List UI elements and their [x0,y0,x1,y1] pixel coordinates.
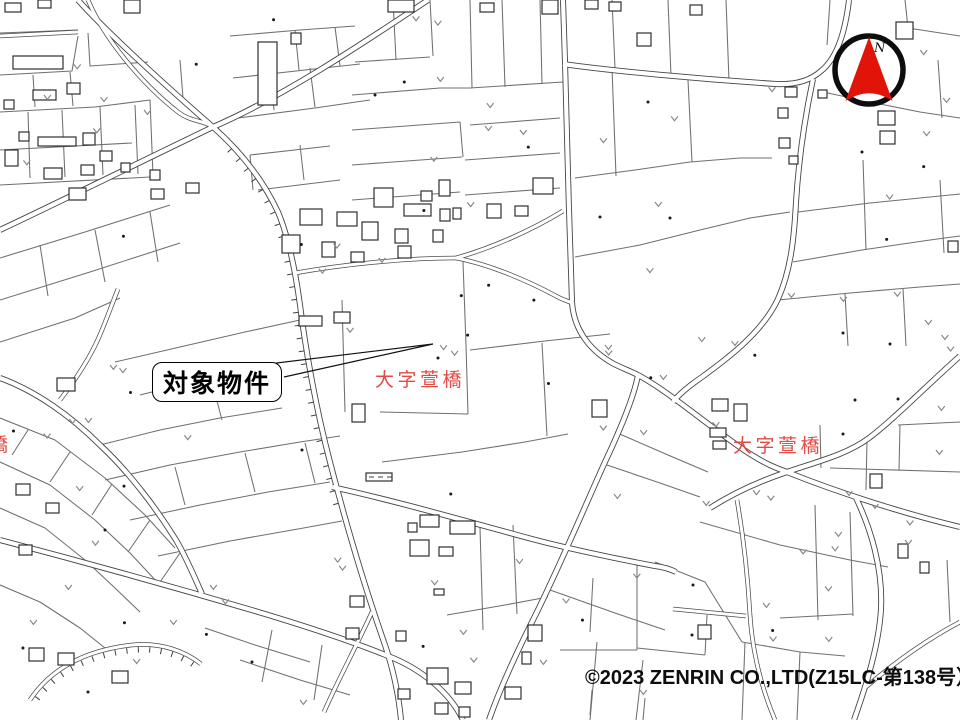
point-symbol-dot [251,661,254,664]
building-footprint [388,0,414,12]
field-chevron-mark [920,50,927,54]
field-chevron-mark [485,126,492,130]
field-chevron-mark [65,585,72,589]
point-symbol-dot [195,63,198,66]
building-footprint [150,170,160,180]
field-chevron-mark [101,97,108,101]
place-label-center: 大字萱橋 [375,369,465,391]
field-chevron-mark [936,450,943,454]
building-footprint [459,707,470,717]
point-symbol-dot [129,391,132,394]
building-footprint [29,648,44,661]
field-chevron-mark [769,87,776,91]
building-footprint [352,404,365,422]
field-chevron-mark [93,128,100,132]
point-symbol-dot [581,619,584,622]
building-footprint [789,156,798,164]
building-footprint [515,206,528,216]
building-footprint [920,562,929,573]
slope-tick [265,200,270,203]
building-footprint [112,671,128,683]
point-symbol-dot [647,101,650,104]
building-footprint [350,596,364,607]
building-footprint [690,5,702,15]
point-symbol-dot [691,634,694,637]
building-footprint [487,204,501,218]
building-footprint [542,0,558,14]
point-symbol-dot [897,398,900,401]
field-chevron-mark [753,490,760,494]
building-footprint [69,188,86,200]
building-footprint [58,653,74,665]
building-footprint [282,235,300,253]
building-footprint [57,378,75,391]
point-symbol-dot [599,216,602,219]
building-footprint [300,209,322,225]
building-footprint [16,484,30,495]
compass-north-indicator: N [835,36,903,104]
field-chevron-mark [110,365,117,369]
building-footprint [100,151,112,161]
point-symbol-dot [374,94,377,97]
building-footprint [322,242,335,257]
building-footprint [505,687,521,699]
building-footprint [46,503,59,513]
point-symbol-dot [527,146,530,149]
field-chevron-mark [600,138,607,142]
slope-tick [330,491,335,492]
building-footprint [346,628,359,639]
road-surfaces [0,0,960,720]
building-footprint [420,515,439,527]
slope-tick [297,338,303,339]
point-symbol-dot [669,217,672,220]
slope-tick [285,261,290,262]
point-symbol-dot [272,18,275,21]
field-chevron-mark [563,599,570,603]
slope-tick [308,402,313,403]
building-footprint [592,400,607,417]
field-chevron-mark [614,494,621,498]
slope-tick [244,168,248,171]
point-symbol-dot [532,299,535,302]
field-chevron-mark [763,603,770,607]
building-footprint [880,131,895,144]
field-chevron-mark [451,351,458,355]
field-chevron-mark [600,426,607,430]
building-footprint [710,428,726,437]
field-chevron-mark [120,368,127,372]
field-chevron-mark [470,658,477,662]
slope-tick [171,652,173,657]
slope-tick [35,697,39,700]
field-chevron-mark [788,293,795,297]
field-chevron-mark [825,637,832,641]
field-chevron-mark [184,435,191,439]
building-footprint [151,189,164,199]
slope-tick [317,440,322,441]
place-label-east: 大字萱橋 [733,435,823,457]
road-network [0,0,960,720]
slope-tick [306,389,311,390]
slope-tick [291,299,297,300]
building-footprint [396,631,406,641]
slope-tick [181,656,183,661]
building-footprint [453,208,461,219]
parcel-lines-center [342,262,708,630]
point-symbol-dot [122,235,125,238]
field-chevron-mark [467,202,474,206]
building-footprint [439,547,453,556]
building-footprint [38,137,76,146]
slope-tick [299,351,305,352]
field-chevron-mark [947,347,954,351]
building-footprint [712,399,728,411]
building-footprint [698,625,711,639]
field-chevron-mark [768,496,775,500]
building-footprint [427,668,448,684]
compass-n-label: N [873,41,886,56]
building-footprint [439,180,450,196]
slope-tick [43,688,47,692]
building-footprint [410,540,429,556]
field-chevron-mark [732,341,739,345]
building-footprint [121,163,130,172]
map-canvas: 大字萱橋 大字萱橋 橋 N [0,0,960,720]
point-symbol-dot [301,449,304,452]
field-chevron-mark [144,110,151,114]
field-chevron-mark [923,131,930,135]
building-footprint [337,212,357,226]
field-chevron-mark [133,659,140,663]
target-property-callout-label: 対象物件 [163,364,271,400]
field-chevron-mark [431,580,438,584]
field-chevron-mark [487,103,494,107]
point-symbol-dot [21,646,24,649]
building-footprint [38,0,51,8]
point-symbol-dot [403,80,406,83]
building-footprint [408,523,417,532]
field-chevron-mark [894,292,901,296]
field-chevron-mark [434,21,441,25]
slope-tick [287,274,293,275]
building-footprint [896,22,913,39]
building-footprint [878,111,895,125]
building-footprint [533,178,553,194]
slope-tick [51,679,55,683]
slope-tick [228,149,232,153]
field-chevron-mark [698,337,705,341]
field-chevron-mark [646,268,653,272]
slope-tick [127,648,128,654]
field-chevron-mark [460,630,467,634]
field-chevron-mark [85,418,92,422]
point-symbol-dot [300,243,303,246]
point-symbol-dot [771,629,774,632]
field-chevron-mark [671,116,678,120]
building-footprint [124,0,140,13]
slope-tick [71,666,74,671]
field-chevron-mark [437,77,444,81]
point-symbol-dot [889,343,892,346]
building-footprint [785,87,797,97]
building-footprint [299,316,322,326]
slope-tick [92,656,94,661]
field-chevron-mark [655,202,662,206]
field-chevron-mark [832,546,839,550]
building-footprint [81,165,94,175]
field-chevron-mark [76,486,83,490]
building-footprint [291,33,301,44]
target-property-callout: 対象物件 [152,362,282,402]
point-symbol-dot [466,334,469,337]
field-chevron-mark [210,585,217,589]
point-symbol-dot [885,238,888,241]
building-footprint [528,625,542,641]
slope-tick [303,377,309,378]
field-chevron-mark [942,335,949,339]
building-footprint [435,703,448,714]
field-chevron-mark [825,586,832,590]
field-chevron-mark [660,375,667,379]
field-chevron-mark [907,521,914,525]
building-footprint [398,689,410,699]
building-footprint [713,441,726,449]
field-chevron-mark [170,620,177,624]
field-chevron-mark [605,351,612,355]
point-symbol-dot [842,332,845,335]
building-footprint [637,33,651,46]
field-chevron-mark [440,345,447,349]
field-chevron-mark [30,620,37,624]
building-footprint [362,222,378,240]
building-footprint [898,544,908,558]
point-symbol-dot [437,357,440,360]
field-chevron-mark [520,130,527,134]
point-symbol-dot [922,165,925,168]
place-label-west-partial: 橋 [0,434,12,456]
point-symbol-dot [649,376,652,379]
slope-tick [333,503,338,504]
field-chevron-mark [413,16,420,20]
point-symbol-dot [205,633,208,636]
field-chevron-mark [92,541,99,545]
building-footprint [450,521,475,534]
field-chevron-mark [938,406,945,410]
slope-tick [320,453,325,454]
point-symbol-dot [104,529,107,532]
point-symbol-dot [487,284,490,287]
building-footprint [258,42,277,105]
building-footprint [421,191,432,201]
building-footprint [5,150,18,166]
building-footprint [818,90,827,98]
slope-tick [275,224,280,226]
slope-tick [326,478,331,479]
field-chevron-mark [334,558,341,562]
slope-tick [103,653,104,658]
building-footprint [455,682,471,694]
slope-tick [301,364,307,365]
building-footprint [433,230,443,242]
copyright-notice: ©2023 ZENRIN CO.,LTD(Z15LC-第138号） [585,661,960,690]
field-chevron-mark [300,700,307,704]
building-footprint [5,3,21,12]
point-symbol-dot [449,493,452,496]
field-chevron-mark [516,559,523,563]
point-symbol-dot [422,209,425,212]
road-casings [0,0,960,720]
point-symbol-dot [753,354,756,357]
point-symbol-dot [842,433,845,436]
field-symbol-marks [12,16,954,704]
slope-tick [323,466,328,467]
map-viewport: 大字萱橋 大字萱橋 橋 N 対象物件 ©2023 ZENRIN CO.,LTD(… [0,0,960,720]
point-symbol-dot [422,645,425,648]
point-symbol-dot [547,382,550,385]
point-symbol-dot [854,399,857,402]
field-chevron-mark [925,320,932,324]
building-footprint [948,241,958,252]
slope-tick [314,428,319,429]
building-footprint [83,133,95,145]
slope-tick [191,662,194,667]
field-chevron-mark [605,345,612,349]
building-footprint [44,168,62,179]
field-chevron-mark [347,328,354,332]
slope-tick [115,650,116,655]
building-footprint [585,0,598,9]
parcel-lines [0,0,960,720]
field-chevron-mark [540,660,547,664]
field-chevron-mark [886,195,893,199]
slope-tick [293,312,299,313]
slope-tick [160,649,161,654]
field-chevron-mark [770,637,777,641]
building-footprint [334,312,350,323]
field-chevron-mark [835,532,842,536]
field-chevron-mark [703,501,710,505]
building-footprint [404,204,431,216]
point-symbol-dot [692,584,695,587]
slope-tick [270,212,275,214]
point-symbol-dot [87,691,90,694]
point-symbol-dot [460,294,463,297]
building-footprint [609,2,621,11]
slope-tick [81,661,83,666]
field-chevron-mark [640,430,647,434]
building-footprint [67,83,80,94]
building-footprint [395,229,408,243]
slope-tick [61,672,64,677]
building-footprint [779,138,790,148]
building-footprint [870,474,882,488]
point-symbol-dot [861,151,864,154]
building-footprint [778,108,788,118]
building-footprint [398,246,411,258]
building-footprint [480,3,494,12]
point-symbol-dot [122,485,125,488]
slope-tick [236,158,240,162]
building-footprint [440,209,450,221]
building-footprint [522,652,531,664]
building-footprint [351,252,364,262]
building-footprint [13,56,63,69]
slope-tick [311,415,316,416]
building-footprint [4,100,14,109]
field-chevron-mark [943,98,950,102]
point-symbol-dot [12,429,15,432]
building-footprint [434,589,444,595]
building-footprint [186,183,199,193]
building-footprint [19,132,29,141]
field-chevron-mark [640,690,647,694]
point-symbol-dot [123,621,126,624]
building-footprint [19,545,32,555]
building-footprint [734,404,747,421]
field-chevron-mark [74,64,81,68]
field-chevron-mark [339,566,346,570]
building-footprint [374,188,393,207]
slope-tick [289,287,295,288]
